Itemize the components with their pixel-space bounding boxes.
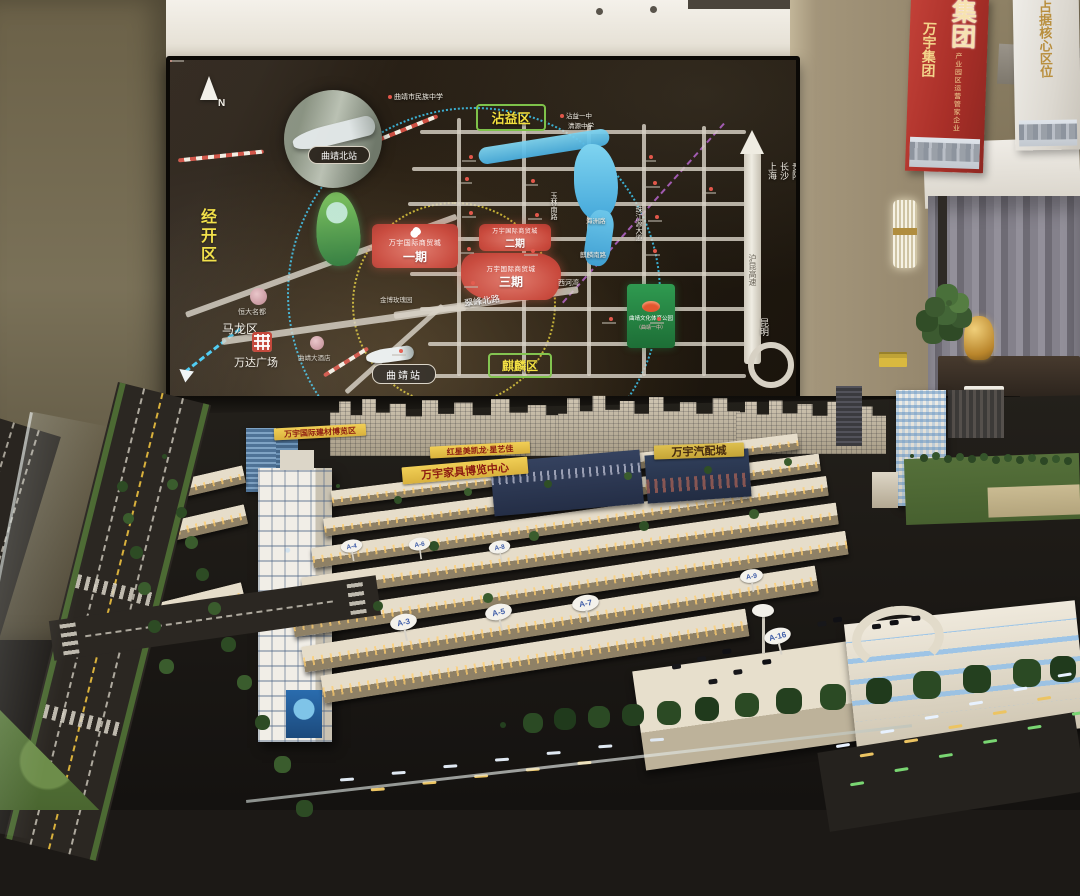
scale-model: 万宇国际建材博览区 红星美凯龙·星艺佳 万宇家具博览中心 万宇汽配城 [0,392,1080,810]
railway-segment [178,150,264,163]
road-hukun-label: 沪昆高速 [747,254,758,286]
qingyuan-label: 清源中学 [568,120,594,130]
roof-sign-disc [752,604,774,617]
lot-label: A-16 [768,630,787,643]
poi-dot [560,114,564,118]
red-banner-subtitle: 产业园区运营管家企业 [950,52,963,132]
city-guiyang: 贵阳 [790,162,800,180]
zhanyi1-label: 沾益一中 [560,110,592,120]
avenue-tree-row [162,454,167,459]
red-banner: 集团 万宇集团 产业园区运营管家企业 [905,0,989,173]
scattered-trees [336,484,340,488]
district-zhanyi: 沾益区 [491,108,530,127]
white-highrise-roof [280,450,314,470]
parcel-brand: 万宇国际商贸城 [487,263,536,273]
wall-sconce-band [893,228,917,235]
parcel-logo [410,227,421,238]
tower-base-poster [286,690,322,738]
city-kunming: 昆明 [758,318,771,336]
red-banner-title: 万宇集团 [918,21,940,78]
culture-park-parcel: 曲靖文化体育公园 （曲靖一中） [627,284,675,348]
minzu-school-label: 曲靖市民族中学 [388,92,443,102]
crosswalk [346,581,366,615]
dark-tower [948,390,1004,438]
hotel-circle [310,336,324,350]
tiny-poi-text-smudges [170,60,184,62]
culture-park-label: 曲靖文化体育公园 [629,314,673,322]
potted-plant [946,300,952,306]
right-plaza [988,484,1080,517]
sign-auto-text: 万宇汽配城 [671,442,727,460]
district-qilin: 麒麟区 [502,357,538,374]
white-banner-photo [1019,119,1077,146]
road-yulin-label: 玉林南路 [548,192,558,220]
lot-label: A-6 [414,540,425,549]
upper-wall [166,0,806,62]
road-haizhou-label: 海洲路 [586,215,606,225]
parcel-brand: 万宇国际商贸城 [389,238,442,248]
hengda-label: 恒大名都 [238,307,266,317]
jinbo-label: 金博玫瑰园 [380,294,413,304]
minzu-text: 曲靖市民族中学 [394,94,443,101]
ceiling-spotlight [596,8,603,15]
white-banner-title: 占据核心区位 [1035,0,1055,78]
right-field-trees [910,454,914,458]
main-station-label: 曲靖站 [386,367,422,382]
parcel-phase1: 万宇国际商贸城 一期 [372,224,458,268]
river-body [574,144,618,220]
north-station-pill: 曲靖北站 [308,146,370,164]
sales-center-photo: { "banners": { "red": {"big": "集团", "tit… [0,0,1080,810]
red-banner-big-text: 集团 [943,0,981,49]
lot-label: A-4 [346,542,357,551]
lot-label: A-8 [494,543,505,552]
compass-icon [200,76,218,100]
led-screen: N 曲靖北站 经开区 沾益区 麒麟区 马龙区 万宇国际商贸城 一期 万宇国际商贸… [166,56,800,406]
compass-label: N [218,98,225,109]
expressway-arrow [740,130,764,154]
north-station-photo [284,90,382,188]
ceiling-spotlight [650,6,657,13]
front-tree-row [500,722,506,728]
poi-dot [388,95,392,99]
district-jingkai: 经开区 [194,208,218,265]
main-station-pill: 曲靖站 [372,364,436,384]
hotel-label: 曲靖大酒店 [298,352,331,362]
district-zhanyi-box: 沾益区 [476,104,546,131]
red-banner-photo [909,137,980,169]
parcel-phase1-label: 一期 [403,248,427,265]
interchange-ring [748,342,794,388]
golden-ornament [964,316,994,360]
dark-tower [836,386,862,446]
lot-label: A-5 [491,606,505,617]
wanda-icon [252,332,272,352]
white-banner: 占据核心区位 [1013,0,1080,151]
xihewan-label: 西河湾 [558,278,579,288]
lot-label: A-7 [578,597,592,608]
culture-park-sublabel: （曲靖一中） [636,324,666,331]
hengda-circle [250,288,267,305]
window-mullion [938,196,947,306]
ceiling-shadow-sliver [688,0,798,9]
parcel-phase2-label: 二期 [505,235,525,250]
wanda-label: 万达广场 [234,354,278,370]
garage-roof-cars [872,624,881,630]
lot-label: A-3 [396,616,410,627]
district-qilin-box: 麒麟区 [488,353,552,378]
parcel-phase3: 万宇国际商贸城 三期 [461,253,561,300]
road-qilin-s-label: 麒麟南路 [580,249,606,259]
north-station-label: 曲靖北站 [321,149,357,162]
zhanyi1-text: 沾益一中 [566,113,592,120]
parcel-brand: 万宇国际商贸城 [492,226,538,235]
parcel-phase3-label: 三期 [499,273,523,290]
stadium-logo [642,301,660,312]
road-zhujiang-label: 珠江源大道 [633,206,643,241]
parcel-phase2: 万宇国际商贸城 二期 [479,224,551,251]
lot-label: A-9 [746,571,758,580]
warning-sign [879,352,907,367]
right-podium [872,472,898,508]
